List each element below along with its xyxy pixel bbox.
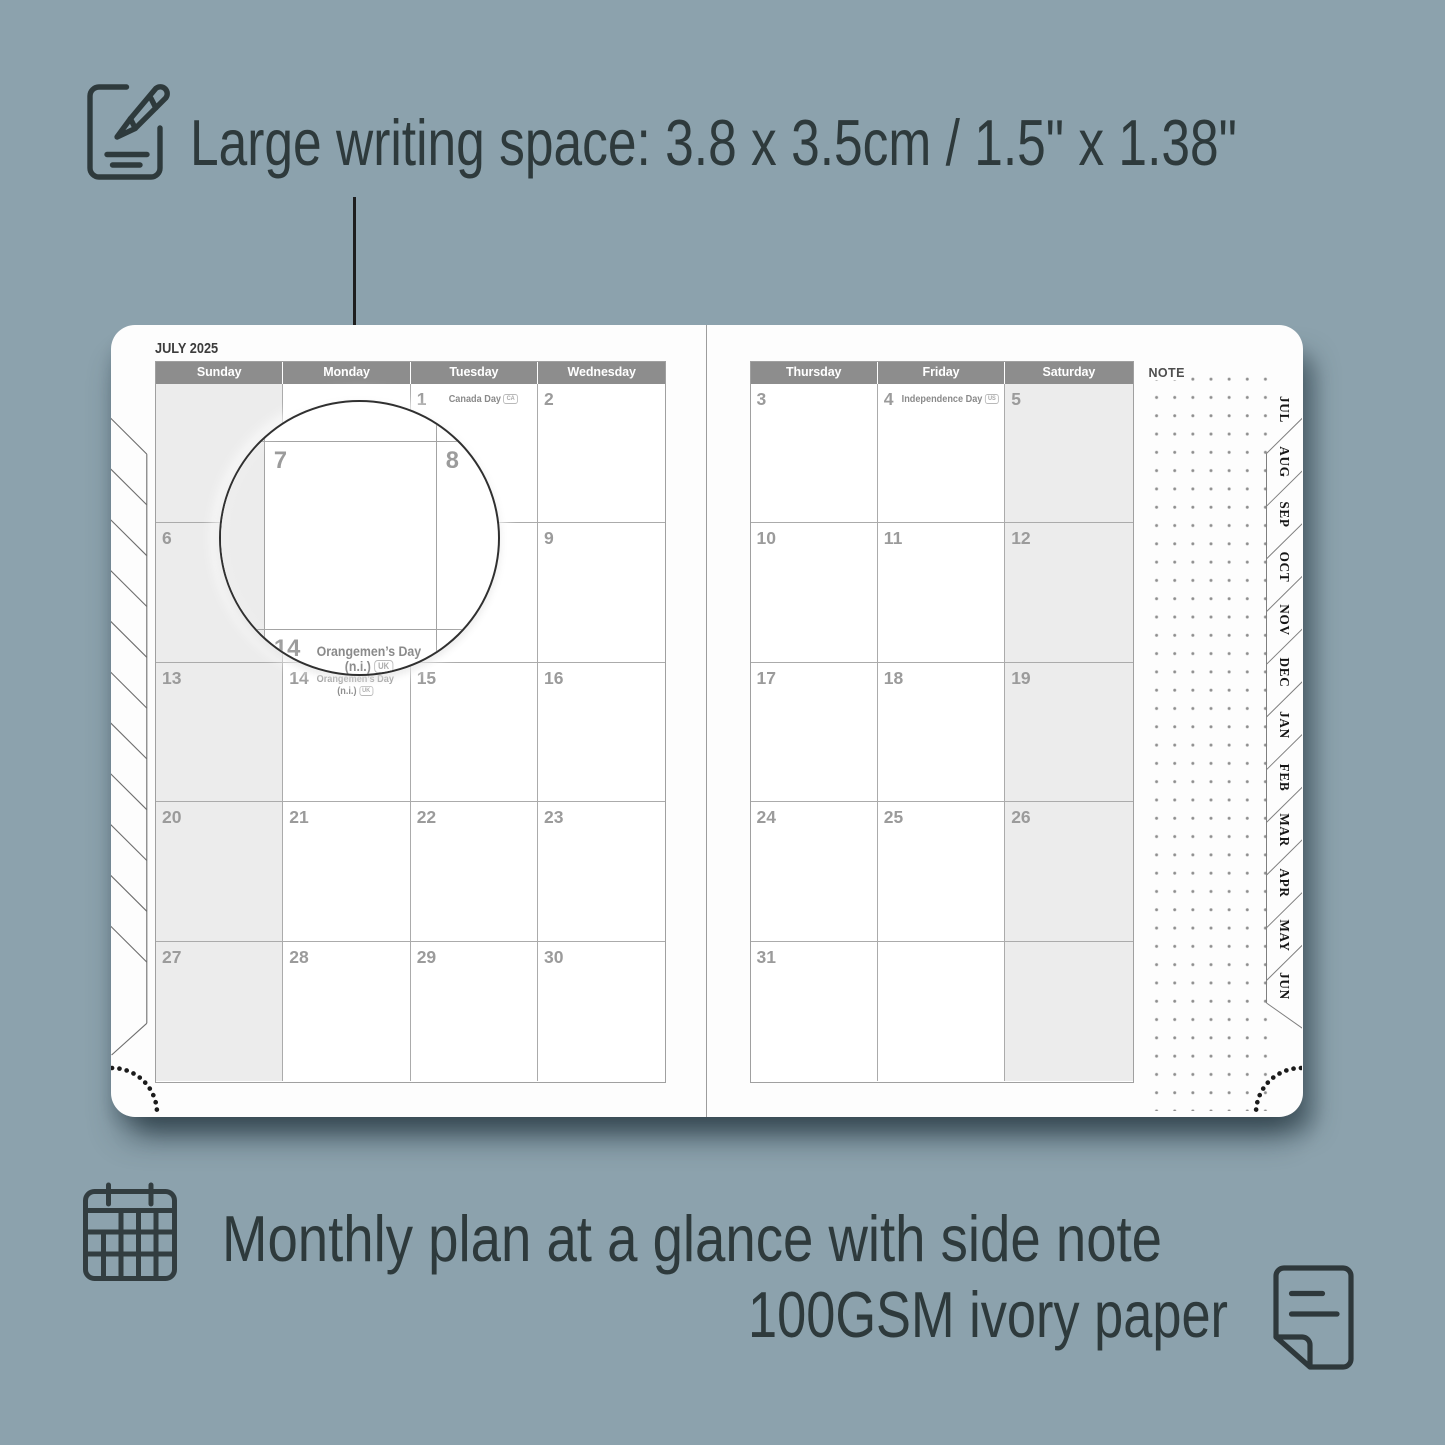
svg-text:SEP: SEP [1277,501,1292,527]
svg-text:JAN: JAN [1277,711,1292,739]
svg-text:MAY: MAY [1277,919,1292,951]
svg-text:DEC: DEC [1277,658,1292,688]
svg-text:MAR: MAR [1277,813,1292,847]
svg-text:JUN: JUN [1277,972,1292,1000]
svg-text:AUG: AUG [1277,446,1292,477]
svg-text:FEB: FEB [1277,764,1292,792]
svg-text:NOV: NOV [1277,604,1292,635]
svg-text:JUL: JUL [1277,396,1292,423]
svg-text:APR: APR [1277,868,1292,897]
svg-text:OCT: OCT [1277,552,1292,583]
